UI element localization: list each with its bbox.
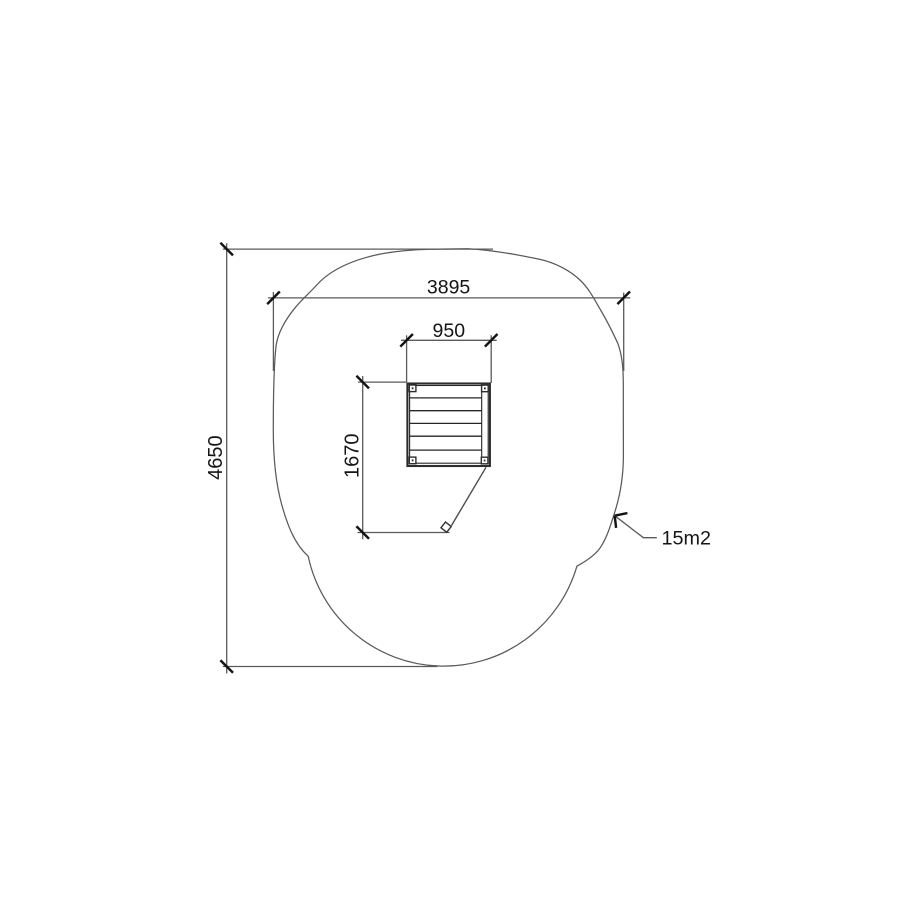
svg-text:1670: 1670 [342, 434, 364, 479]
svg-text:4650: 4650 [205, 435, 227, 480]
svg-text:950: 950 [433, 320, 466, 342]
svg-text:3895: 3895 [427, 277, 471, 299]
svg-text:15m2: 15m2 [662, 528, 711, 550]
